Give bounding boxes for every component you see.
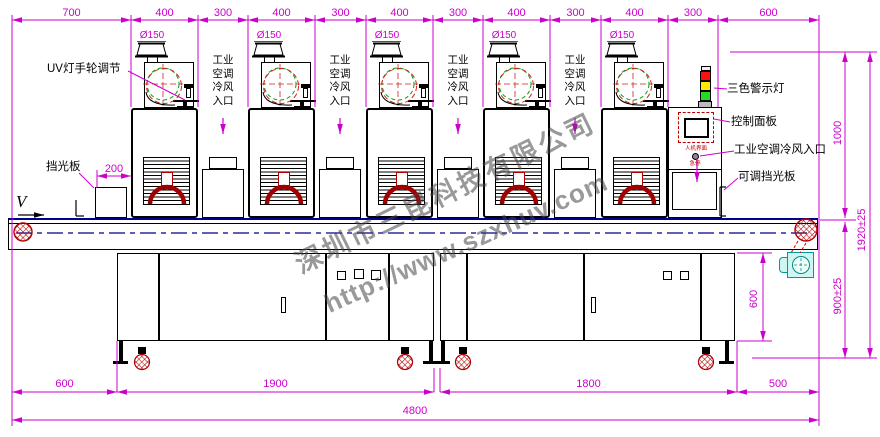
uv-handwheel-label: UV灯手轮调节 xyxy=(47,63,120,76)
conveyor-direction-label: V xyxy=(16,195,26,208)
adjustable-shield-label: 可调挡光板 xyxy=(738,171,796,184)
estop-label: 急停 xyxy=(682,161,708,167)
air-inlet-right-label: 工业空调冷风入口 xyxy=(734,144,826,157)
air-inlet-vertical-label-2: 工业 空调 冷风 入口 xyxy=(327,54,353,116)
dim-top-7: 400 xyxy=(507,7,525,19)
dim-top-0: 700 xyxy=(62,7,80,19)
dim-top-8: 300 xyxy=(566,7,584,19)
control-panel-label: 控制面板 xyxy=(731,116,777,129)
uv-unit-3-duct-dia-label: Ø150 xyxy=(371,30,403,42)
dim-shield-offset: 200 xyxy=(97,163,131,175)
dim-top-9: 400 xyxy=(625,7,643,19)
dim-right-1920: 1920±25 xyxy=(856,209,868,252)
uv-unit-1-duct-dia-label: Ø150 xyxy=(136,30,168,42)
air-inlet-vertical-label-3: 工业 空调 冷风 入口 xyxy=(445,54,471,116)
dim-right-900: 900±25 xyxy=(832,278,844,315)
uv-unit-4-duct-dia-label: Ø150 xyxy=(488,30,520,42)
dim-bottom-0: 600 xyxy=(55,378,73,390)
dim-top-2: 300 xyxy=(214,7,232,19)
dim-top-3: 400 xyxy=(272,7,290,19)
air-inlet-vertical-label-1: 工业 空调 冷风 入口 xyxy=(210,54,236,116)
dim-top-10: 300 xyxy=(684,7,702,19)
uv-unit-5-duct-dia-label: Ø150 xyxy=(606,30,638,42)
dim-total-4800: 4800 xyxy=(403,405,427,417)
dim-bottom-1: 1900 xyxy=(263,378,287,390)
uv-unit-2-duct-dia-label: Ø150 xyxy=(253,30,285,42)
dim-bottom-3: 500 xyxy=(769,378,787,390)
dim-right-1000: 1000 xyxy=(832,121,844,145)
hmi-label: 人机界面 xyxy=(677,146,715,152)
dim-top-6: 300 xyxy=(449,7,467,19)
light-shield-label: 挡光板 xyxy=(46,161,81,174)
dim-top-4: 300 xyxy=(331,7,349,19)
dim-top-11: 600 xyxy=(759,7,777,19)
tricolor-light-label: 三色警示灯 xyxy=(727,83,785,96)
text-layer: UV灯手轮调节 挡光板 200 V 三色警示灯 控制面板 工业空调冷风入口 可调… xyxy=(0,0,880,437)
dim-top-1: 400 xyxy=(155,7,173,19)
dim-top-5: 400 xyxy=(390,7,408,19)
dim-bottom-2: 1800 xyxy=(576,378,600,390)
cad-drawing-canvas: UV灯手轮调节 挡光板 200 V 三色警示灯 控制面板 工业空调冷风入口 可调… xyxy=(0,0,880,437)
dim-cabinet-height-600: 600 xyxy=(748,290,760,308)
